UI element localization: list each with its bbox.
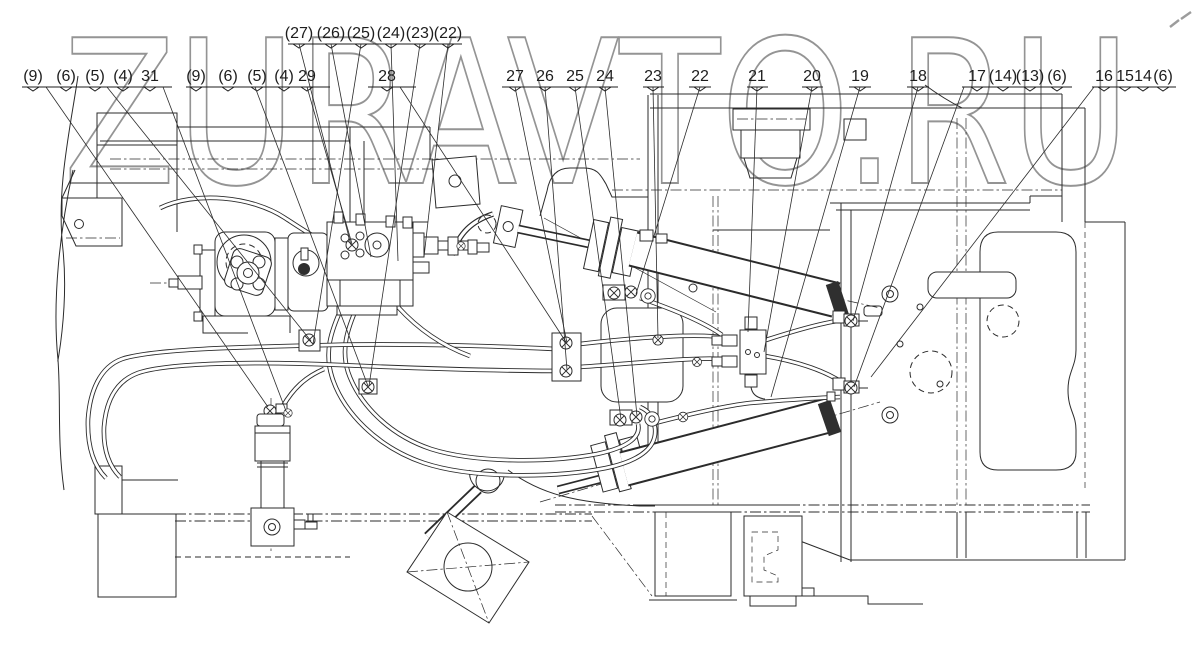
callout-label: 23 <box>644 68 662 85</box>
callout-label: 17 <box>968 68 986 85</box>
callout-label: (14) <box>989 68 1017 85</box>
filter-assembly <box>251 398 317 552</box>
parts-diagram-page: ZURAVTO.RU <box>0 0 1196 667</box>
callout-label: 28 <box>378 68 396 85</box>
diagram-canvas: ZURAVTO.RU <box>0 0 1196 667</box>
wall-elbow-lower <box>827 378 868 401</box>
corner-mark <box>1170 12 1191 27</box>
callout-label: (6) <box>218 68 238 85</box>
bracket-chevron <box>1137 87 1149 91</box>
callout-label: (4) <box>274 68 294 85</box>
callout-label: 18 <box>909 68 927 85</box>
callout-label: 16 <box>1095 68 1113 85</box>
callout-label: (23) <box>406 25 434 42</box>
manifold-block <box>712 317 766 399</box>
callout-label: (5) <box>85 68 105 85</box>
callout-label: (27) <box>285 25 313 42</box>
callout-label: 21 <box>748 68 766 85</box>
callout-label: (6) <box>56 68 76 85</box>
callout-label: (9) <box>186 68 206 85</box>
callout-label: 15 <box>1116 68 1134 85</box>
callout-label: (6) <box>1153 68 1173 85</box>
axle-mount <box>640 505 802 606</box>
callout-label: (13) <box>1016 68 1044 85</box>
callout-label: 25 <box>566 68 584 85</box>
rear-panel <box>864 232 1076 470</box>
callout-label: (24) <box>377 25 405 42</box>
callout-label: (25) <box>347 25 375 42</box>
callout-label: 26 <box>536 68 554 85</box>
bracket-chevron <box>27 87 39 91</box>
pump-assembly <box>169 232 328 333</box>
callout-label: (22) <box>434 25 462 42</box>
frame-cutout-panel <box>601 308 683 402</box>
callout-label: 20 <box>803 68 821 85</box>
callout-label: 29 <box>298 68 316 85</box>
callout-label: (9) <box>23 68 43 85</box>
callout-label: (6) <box>1047 68 1067 85</box>
callout-label: 19 <box>851 68 869 85</box>
callout-label: (26) <box>317 25 345 42</box>
callout-label: 14 <box>1134 68 1152 85</box>
callout-label: (4) <box>113 68 133 85</box>
bracket-chevron <box>1157 87 1169 91</box>
callout-label: 31 <box>141 68 159 85</box>
callout-label: 27 <box>506 68 524 85</box>
callout-label: 22 <box>691 68 709 85</box>
callout-label: (5) <box>247 68 267 85</box>
callout-label: 24 <box>596 68 614 85</box>
